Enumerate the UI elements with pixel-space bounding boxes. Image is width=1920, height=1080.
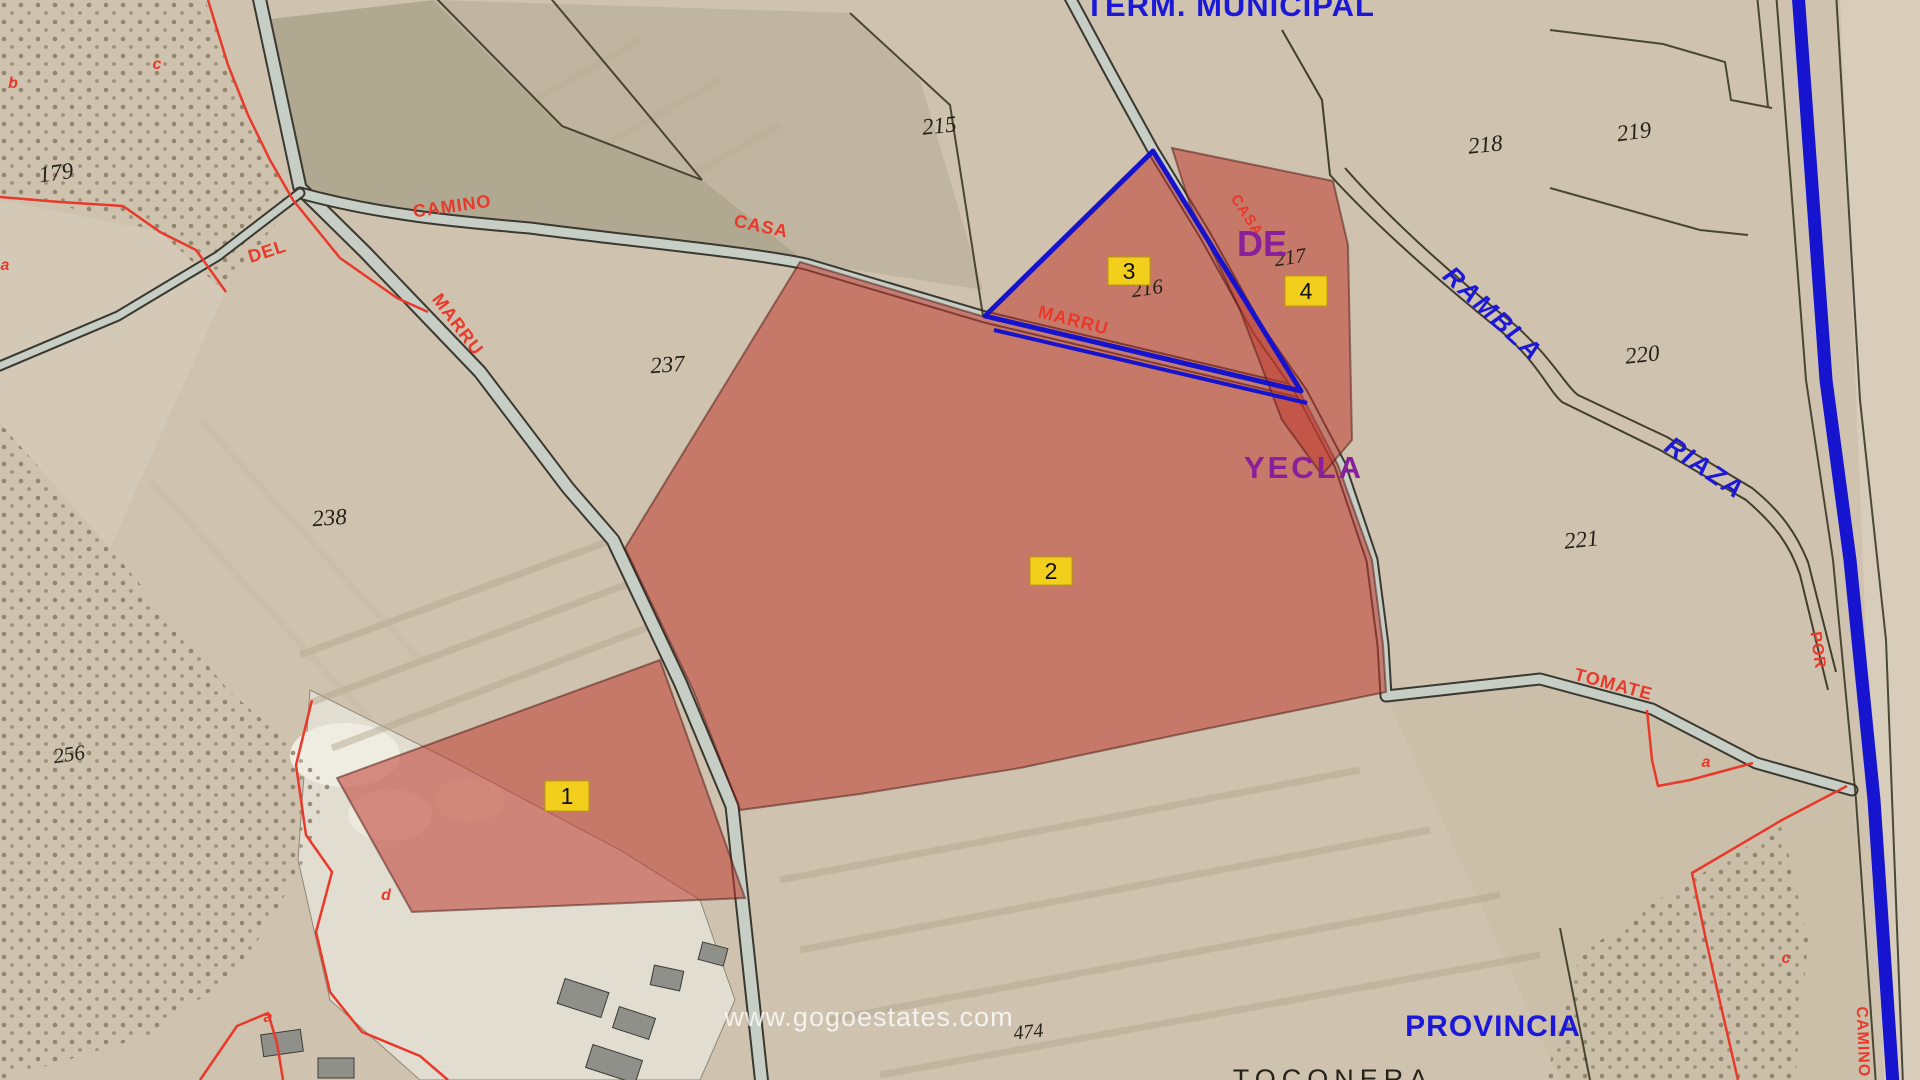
plot-marker-4: 4 [1285,276,1327,306]
subparcel-letter-a: a [1,257,10,274]
plot-marker-1: 1 [545,781,589,811]
parcel-number-237: 237 [649,351,687,378]
parcel-number-221: 221 [1563,525,1600,553]
parcel-number-179: 179 [37,158,75,188]
plot-marker-3-number: 3 [1123,258,1136,284]
subparcel-letter-a-2: a [264,1009,273,1026]
plot-marker-4-number: 4 [1300,278,1313,304]
parcel-number-238: 238 [311,504,348,531]
plot-marker-2: 2 [1030,557,1072,585]
parcel-number-218: 218 [1467,130,1504,159]
subparcel-letter-c-2: c [1782,950,1791,967]
yecla-label: YECLA [1244,450,1364,485]
parcel-number-474: 474 [1012,1020,1044,1045]
parcel-number-219: 219 [1615,117,1653,147]
subparcel-letter-a-3: a [1702,754,1711,771]
term-municipal-label: TERM. MUNICIPAL [1085,0,1375,23]
parcel-number-215: 215 [921,111,958,139]
subparcel-letter-b: b [8,75,18,92]
road-label-camino-2: CAMINO [1853,1006,1872,1077]
de-label: DE [1237,223,1287,264]
plot-marker-2-number: 2 [1045,558,1058,584]
watermark: www.gogoestates.com [723,1002,1013,1032]
plot-marker-3: 3 [1108,257,1150,285]
parcel-number-256: 256 [52,740,87,768]
plot-marker-1-number: 1 [561,783,574,809]
provincia-label: PROVINCIA [1405,1010,1581,1043]
toconera-label: TOCONERA [1233,1064,1434,1080]
map-canvas: 179 215 216 217 218 219 220 221 237 238 … [0,0,1920,1080]
cadastral-map: 179 215 216 217 218 219 220 221 237 238 … [0,0,1920,1080]
subparcel-letter-c: c [153,56,162,73]
subparcel-letter-d: d [381,887,392,904]
parcel-number-220: 220 [1624,340,1661,369]
